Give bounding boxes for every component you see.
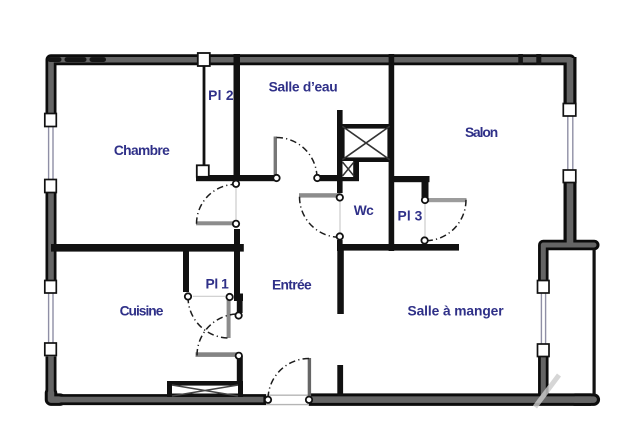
svg-text:Pl 3: Pl 3 xyxy=(398,209,423,224)
svg-text:Salle d’eau: Salle d’eau xyxy=(269,80,338,95)
svg-text:Chambre: Chambre xyxy=(114,143,170,158)
svg-text:Pl 1: Pl 1 xyxy=(206,277,230,292)
svg-text:Pl 2: Pl 2 xyxy=(208,88,234,103)
svg-text:Salon: Salon xyxy=(465,125,498,140)
svg-text:Entrée: Entrée xyxy=(272,278,312,293)
svg-text:Cuisine: Cuisine xyxy=(120,304,164,319)
svg-text:Salle à manger: Salle à manger xyxy=(408,304,505,319)
svg-text:Wc: Wc xyxy=(354,203,374,218)
